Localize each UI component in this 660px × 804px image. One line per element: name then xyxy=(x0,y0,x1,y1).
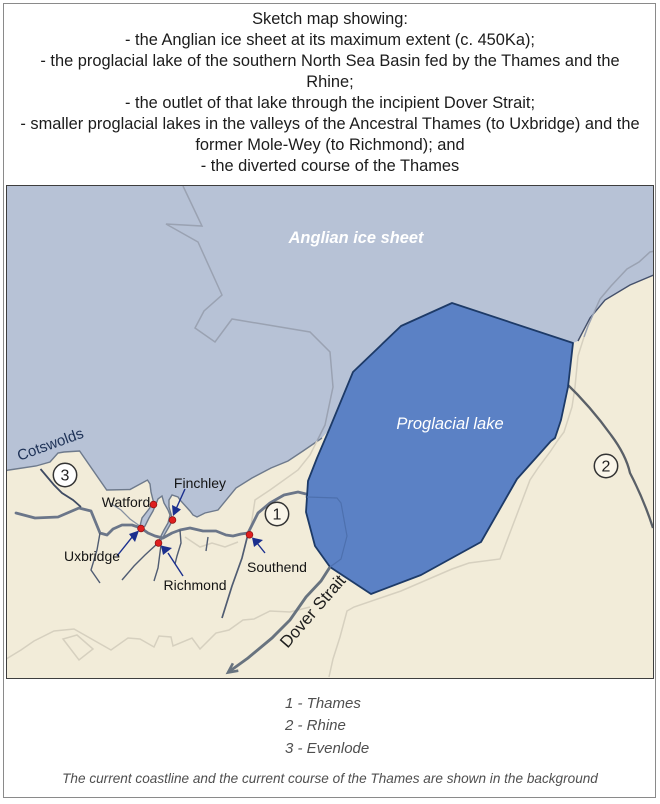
svg-text:Proglacial lake: Proglacial lake xyxy=(396,415,503,433)
svg-text:Uxbridge: Uxbridge xyxy=(64,548,120,564)
svg-text:2: 2 xyxy=(602,459,611,476)
svg-text:Southend: Southend xyxy=(247,559,307,575)
svg-text:Finchley: Finchley xyxy=(174,475,226,491)
svg-text:3: 3 xyxy=(61,468,70,485)
svg-text:1: 1 xyxy=(273,507,282,524)
svg-text:Watford: Watford xyxy=(102,494,151,510)
svg-text:Richmond: Richmond xyxy=(163,577,226,593)
svg-text:Anglian ice sheet: Anglian ice sheet xyxy=(288,229,425,247)
